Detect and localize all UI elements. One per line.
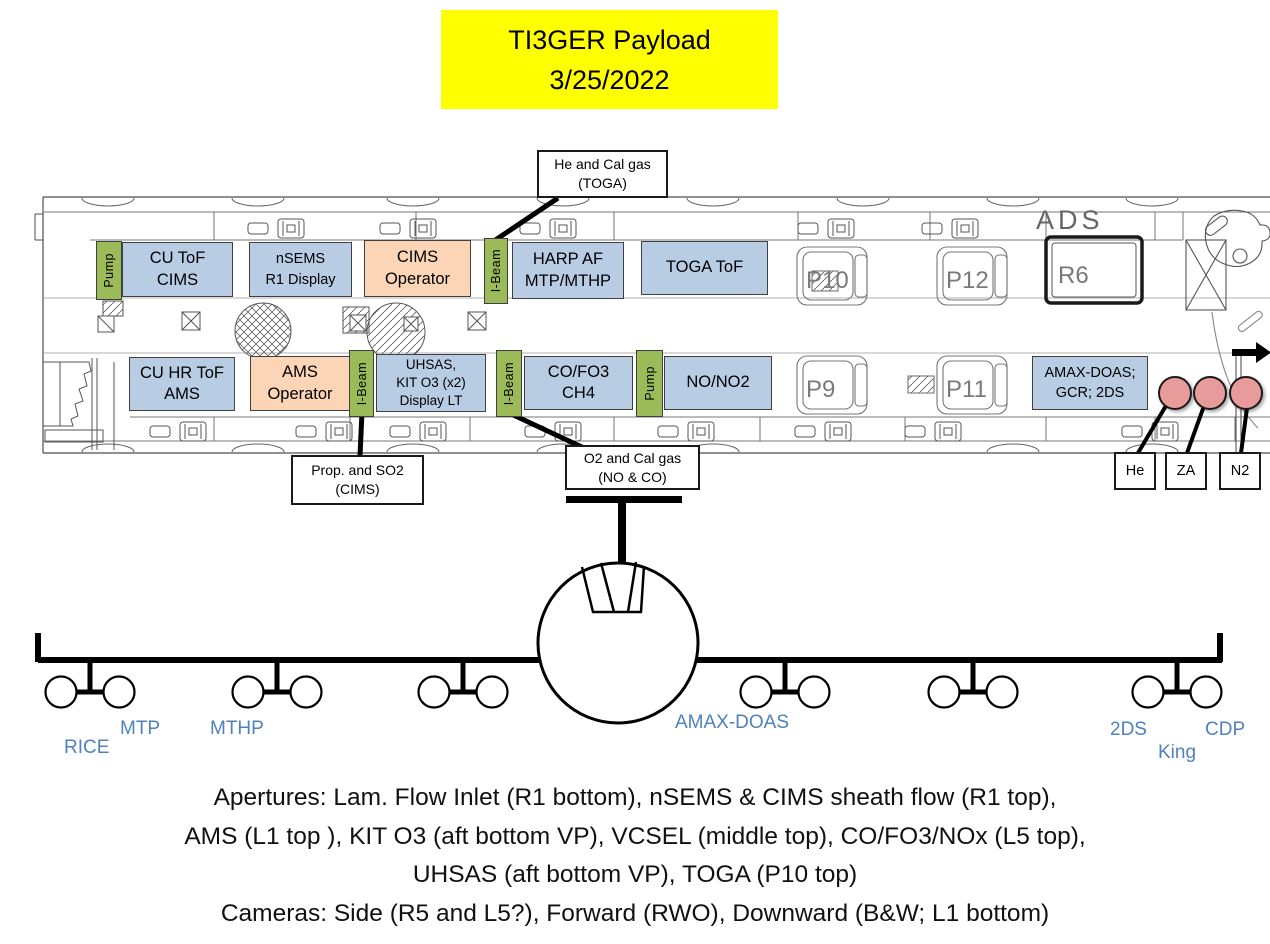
instrument-box-co-fo3: CO/FO3 CH4 [524, 356, 633, 410]
pump-label: Pump [102, 253, 116, 288]
seat-label-p9: P9 [806, 376, 835, 403]
gas-label-n2: N2 [1219, 452, 1261, 490]
instrument-box-uhsas: UHSAS, KIT O3 (x2) Display LT [376, 354, 486, 412]
ti3ger-payload-diagram: P10 P12 P9 P11 R6 ADS [0, 0, 1270, 944]
apertures-note-line2: AMS (L1 top ), KIT O3 (aft bottom VP), V… [0, 818, 1270, 857]
seat-label-p10: P10 [806, 267, 849, 294]
instrument-box-cu-tof-cims: CU ToF CIMS [122, 242, 233, 297]
instrument-box-nsems: nSEMS R1 Display [249, 242, 352, 297]
instrument-box-toga-tof: TOGA ToF [641, 241, 768, 295]
title-line1: TI3GER Payload [508, 20, 711, 60]
pylon-station-5 [929, 660, 1018, 708]
aisle-tables [182, 303, 486, 361]
wing-label-rice: RICE [64, 737, 109, 759]
ibeam-box-3: I-Beam [496, 350, 522, 417]
gas-bottle-n2 [1229, 376, 1263, 410]
pylon-station-1 [46, 660, 135, 708]
pylon-station-6 [1133, 660, 1222, 708]
wing-label-mthp: MTHP [210, 718, 264, 740]
callout-o2-cal-gas-no-co: O2 and Cal gas (NO & CO) [565, 445, 700, 490]
pylon-station-2 [233, 660, 322, 708]
galley-detail [43, 301, 123, 450]
wing-label-mtp: MTP [120, 718, 160, 740]
cameras-note-line: Cameras: Side (R5 and L5?), Forward (RWO… [0, 895, 1270, 934]
ibeam-box-2: I-Beam [349, 350, 374, 417]
fuselage-cross-section [538, 563, 698, 723]
ibeam-label: I-Beam [502, 362, 516, 405]
operator-box-cims: CIMS Operator [364, 240, 471, 297]
apertures-note-line1: Apertures: Lam. Flow Inlet (R1 bottom), … [0, 779, 1270, 818]
wing-label-2ds: 2DS [1110, 719, 1147, 741]
callout-he-cal-gas-toga: He and Cal gas (TOGA) [537, 150, 668, 198]
pump-box-forward: Pump [96, 241, 122, 300]
front-view-wing [38, 562, 1222, 723]
title-box: TI3GER Payload 3/25/2022 [441, 10, 778, 109]
wing-label-king: King [1158, 742, 1196, 764]
ibeam-label: I-Beam [489, 249, 503, 292]
manifold-stem [618, 496, 626, 566]
instrument-box-cu-hr-tof-ams: CU HR ToF AMS [129, 357, 235, 411]
operator-box-ams: AMS Operator [250, 356, 350, 411]
seat-label-p11: P11 [946, 376, 987, 403]
gas-label-he: He [1114, 452, 1156, 490]
instrument-box-no-no2: NO/NO2 [664, 356, 772, 410]
pump-box-aft: Pump [636, 350, 663, 417]
pump-label: Pump [643, 366, 657, 401]
ibeam-label: I-Beam [355, 362, 369, 405]
callout-prop-so2-cims: Prop. and SO2 (CIMS) [291, 455, 424, 505]
gas-label-za: ZA [1165, 452, 1207, 490]
instrument-box-amax-doas: AMAX-DOAS; GCR; 2DS [1032, 356, 1148, 410]
ads-label: ADS [1036, 205, 1104, 235]
rack-label-r6: R6 [1058, 262, 1089, 289]
ibeam-box-1: I-Beam [484, 238, 508, 304]
wing-label-amax-doas: AMAX-DOAS [675, 712, 789, 734]
pylon-station-4 [741, 660, 830, 708]
apertures-note-line3: UHSAS (aft bottom VP), TOGA (P10 top) [0, 856, 1270, 895]
seat-label-p12: P12 [946, 267, 989, 294]
pylon-station-3 [419, 660, 508, 708]
gas-bottle-za [1193, 376, 1227, 410]
title-line2: 3/25/2022 [549, 60, 669, 100]
instrument-box-harp: HARP AF MTP/MTHP [512, 242, 624, 299]
wing-label-cdp: CDP [1205, 719, 1245, 741]
notes-block: Apertures: Lam. Flow Inlet (R1 bottom), … [0, 779, 1270, 933]
flow-direction-arrow [1232, 342, 1270, 363]
gas-bottle-he [1158, 376, 1192, 410]
